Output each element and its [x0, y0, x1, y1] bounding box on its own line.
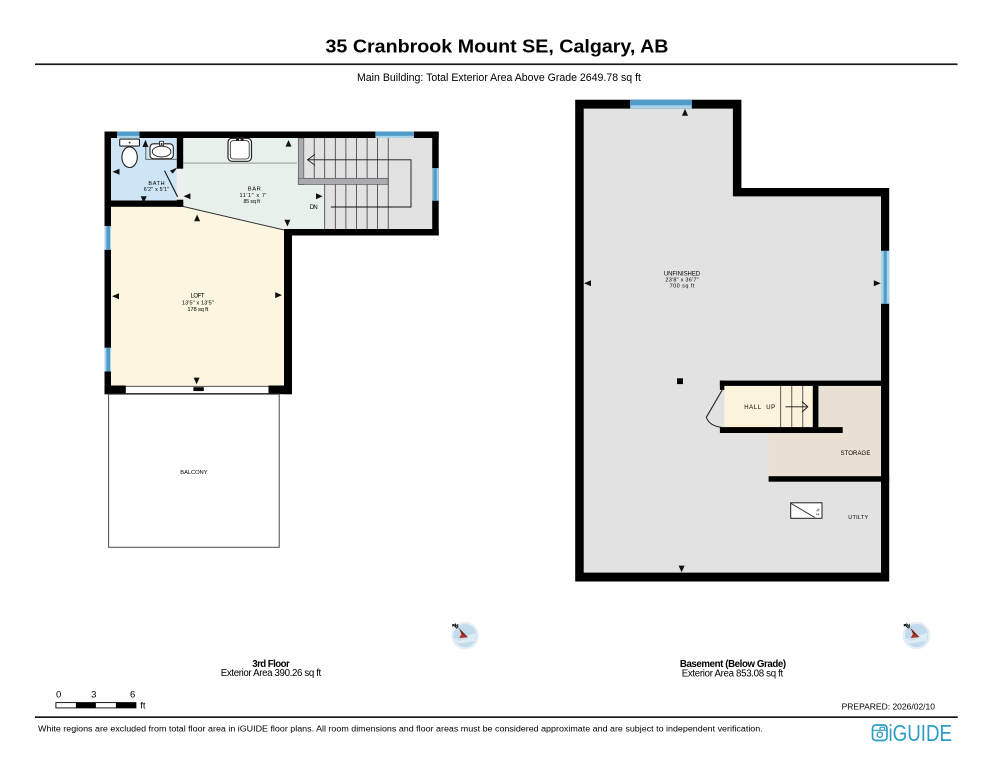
svg-text:PREPARED: 2026/02/10: PREPARED: 2026/02/10 [842, 701, 936, 711]
svg-text:3: 3 [91, 690, 96, 701]
svg-text:FN: FN [816, 509, 821, 516]
svg-text:Exterior Area 853.08 sq ft: Exterior Area 853.08 sq ft [682, 668, 784, 679]
svg-text:700 sq ft: 700 sq ft [670, 284, 695, 290]
svg-text:0: 0 [56, 690, 61, 701]
svg-text:BAR: BAR [248, 187, 261, 193]
svg-text:iGUIDE: iGUIDE [889, 720, 953, 746]
svg-text:LOFT: LOFT [191, 293, 205, 299]
svg-text:Exterior Area 390.26 sq ft: Exterior Area 390.26 sq ft [221, 668, 322, 679]
svg-text:ft: ft [140, 701, 146, 712]
svg-text:UNFINISHED: UNFINISHED [664, 272, 701, 278]
svg-text:UTILTY: UTILTY [848, 515, 868, 521]
svg-text:6: 6 [130, 690, 135, 701]
svg-text:White regions are excluded fro: White regions are excluded from total fl… [38, 725, 763, 734]
svg-text:HALL UP: HALL UP [744, 405, 775, 411]
svg-text:Main Building: Total Exterior: Main Building: Total Exterior Area Above… [357, 72, 641, 84]
svg-text:178 sq ft: 178 sq ft [187, 307, 208, 313]
svg-text:DN: DN [310, 205, 318, 211]
svg-text:BALCONY: BALCONY [180, 470, 207, 476]
svg-text:13'5" x 13'5": 13'5" x 13'5" [182, 300, 214, 306]
svg-text:STORAGE: STORAGE [840, 451, 870, 457]
svg-text:6'2" x 5'1": 6'2" x 5'1" [144, 187, 170, 193]
svg-text:35 Cranbrook Mount SE, Calgary: 35 Cranbrook Mount SE, Calgary, AB [326, 35, 669, 56]
svg-text:85 sq ft: 85 sq ft [243, 199, 260, 205]
